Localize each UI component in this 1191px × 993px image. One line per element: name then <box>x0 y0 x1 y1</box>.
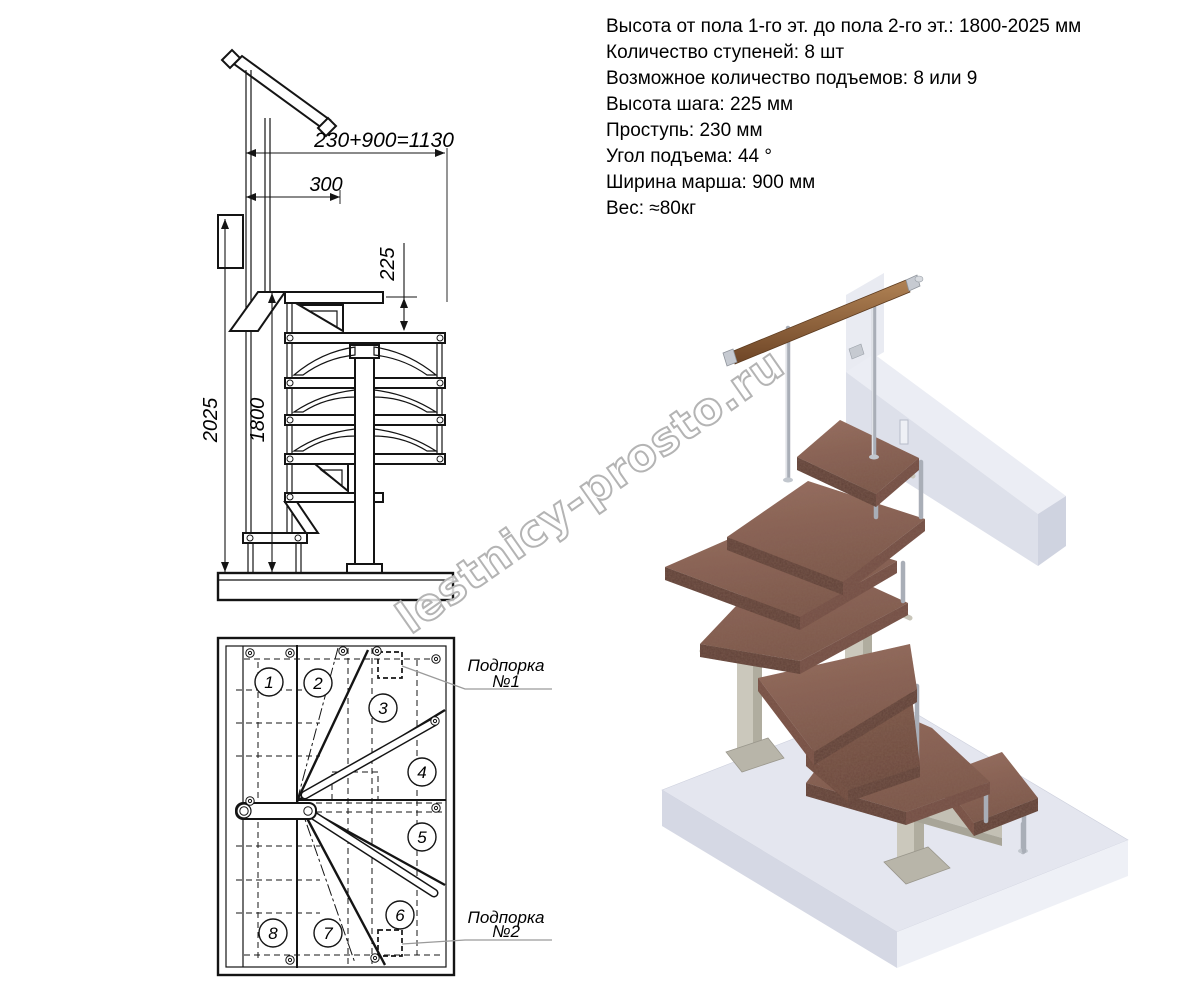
step-number-7: 7 <box>323 924 333 943</box>
dim-label-2025: 2025 <box>200 397 222 443</box>
dimension-2025: 2025 <box>200 219 229 572</box>
dim-label-total-run: 230+900=1130 <box>313 129 454 152</box>
page: Высота от пола 1-го эт. до пола 2-го эт.… <box>0 0 1191 993</box>
step-number-6: 6 <box>395 906 405 925</box>
step-number-3: 3 <box>378 699 388 718</box>
elevation-drawing: 230+900=1130 300 225 2025 <box>200 50 454 600</box>
plan-entry-step <box>236 803 316 819</box>
plan-support-2-marker <box>378 930 402 956</box>
beam-bracket-plate <box>900 420 908 444</box>
plan-step-number-8: 8 <box>259 919 287 947</box>
support-1-label: Подпорка №1 <box>402 656 552 691</box>
dim-label-1800: 1800 <box>247 398 269 443</box>
plan-step-number-5: 5 <box>408 823 436 851</box>
plan-step-number-4: 4 <box>408 758 436 786</box>
elevation-steps-stack <box>243 303 445 573</box>
dimension-225: 225 <box>377 243 417 331</box>
plan-step-number-6: 6 <box>386 901 414 929</box>
dim-label-225: 225 <box>377 246 399 281</box>
dim-label-300: 300 <box>309 174 342 196</box>
support-2-label: Подпорка №2 <box>402 908 552 944</box>
plan-step-number-1: 1 <box>255 668 283 696</box>
step-number-5: 5 <box>417 828 427 847</box>
step-number-8: 8 <box>268 924 278 943</box>
elevation-handrail <box>222 50 336 136</box>
handrail-post-back <box>783 328 793 483</box>
step-number-1: 1 <box>264 673 273 692</box>
support-1-text-line2: №1 <box>492 672 520 691</box>
step-number-2: 2 <box>312 674 323 693</box>
dimension-total-run: 230+900=1130 <box>246 129 454 302</box>
plan-step-number-7: 7 <box>314 919 342 947</box>
step-number-4: 4 <box>417 763 426 782</box>
plan-step-number-2: 2 <box>304 669 332 697</box>
support-2-text-line2: №2 <box>492 922 520 941</box>
dimension-300: 300 <box>246 174 343 204</box>
elevation-landing <box>230 292 383 331</box>
plan-drawing: 1 2 3 4 5 6 7 8 Подпорка №1 Подпорка №2 <box>218 638 552 975</box>
wall-bracket <box>218 215 243 268</box>
drawing-canvas: 230+900=1130 300 225 2025 <box>0 0 1191 993</box>
plan-support-1-marker <box>378 652 402 678</box>
plan-step-number-3: 3 <box>369 694 397 722</box>
